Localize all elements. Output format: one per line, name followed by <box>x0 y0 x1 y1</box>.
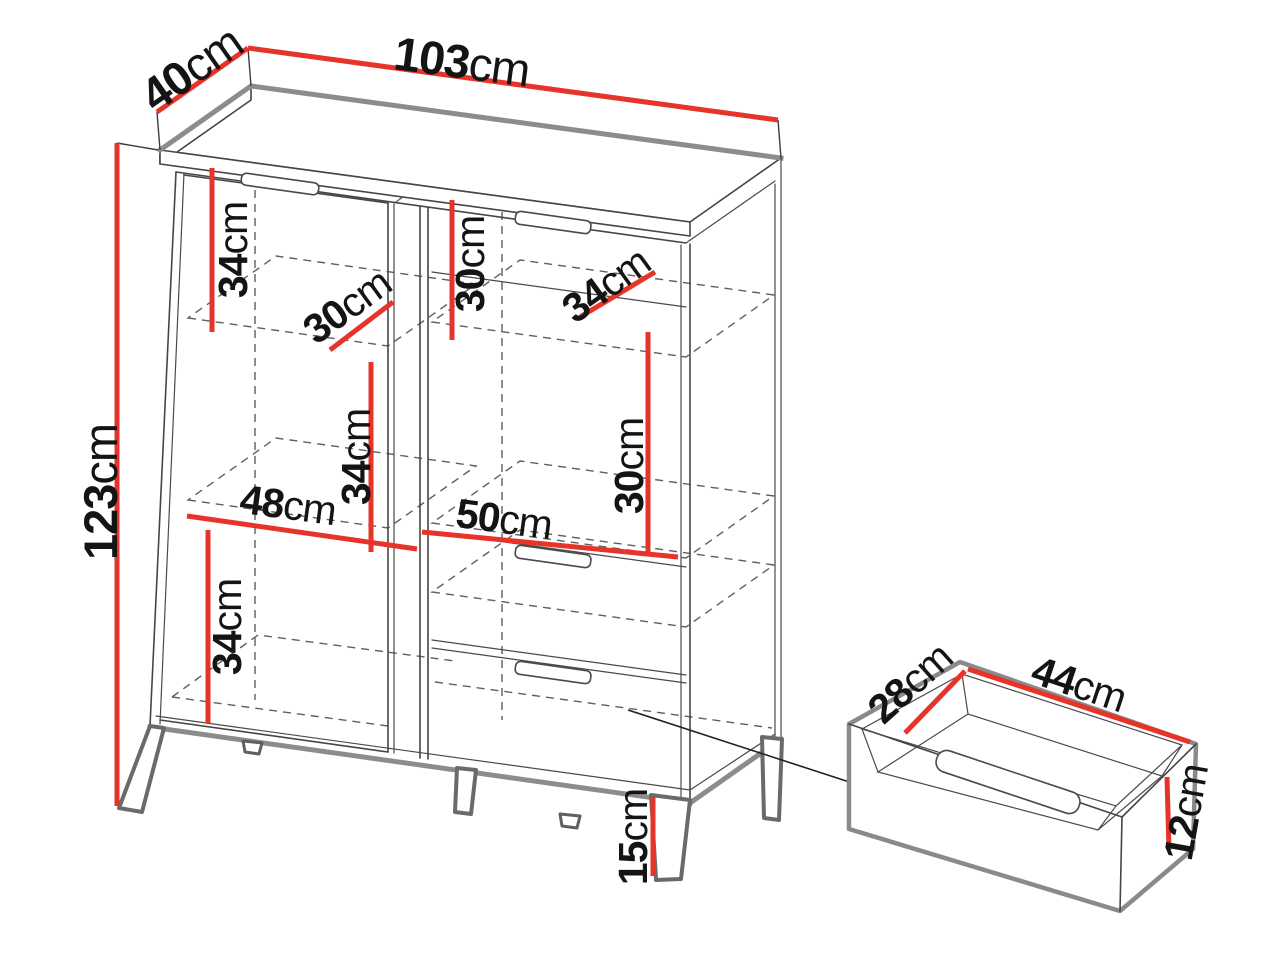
label-right-shelf-depth: 34cm <box>554 238 659 332</box>
furniture-dimension-drawing: 40cm 103cm 123cm 34cm 30cm 30cm 34cm 34c… <box>0 0 1280 960</box>
witness-height-top <box>117 143 158 150</box>
foot-glide-right <box>560 814 580 828</box>
label-right-top-compartment: 30cm <box>447 216 493 312</box>
back-right-leg <box>762 737 782 820</box>
bottom-panel-right-dashed <box>435 682 772 728</box>
label-leg-height: 15cm <box>610 789 656 885</box>
label-top-width: 103cm <box>391 26 533 96</box>
label-height: 123cm <box>74 424 127 560</box>
witness-width-right <box>778 120 781 158</box>
diagram-canvas: 40cm 103cm 123cm 34cm 30cm 30cm 34cm 34c… <box>0 0 1280 960</box>
bottom-panel-left-dashed <box>172 697 388 726</box>
carcass-bottom-inner-edge <box>156 716 690 790</box>
front-left-leg <box>119 726 164 812</box>
label-left-mid-compartment: 34cm <box>333 409 379 505</box>
front-right-leg <box>651 795 690 880</box>
label-left-top-compartment: 34cm <box>210 202 256 298</box>
label-right-mid-compartment: 30cm <box>606 418 652 514</box>
cabinet <box>117 48 782 880</box>
label-right-width: 50cm <box>453 490 554 548</box>
cabinet-legs <box>119 726 782 880</box>
front-middle-leg <box>455 768 476 814</box>
shelf-right-lower-dashed <box>432 530 774 627</box>
left-door-bottom-edge <box>160 720 388 752</box>
foot-glide-left <box>243 741 262 754</box>
label-left-bottom-compartment: 34cm <box>204 579 250 675</box>
